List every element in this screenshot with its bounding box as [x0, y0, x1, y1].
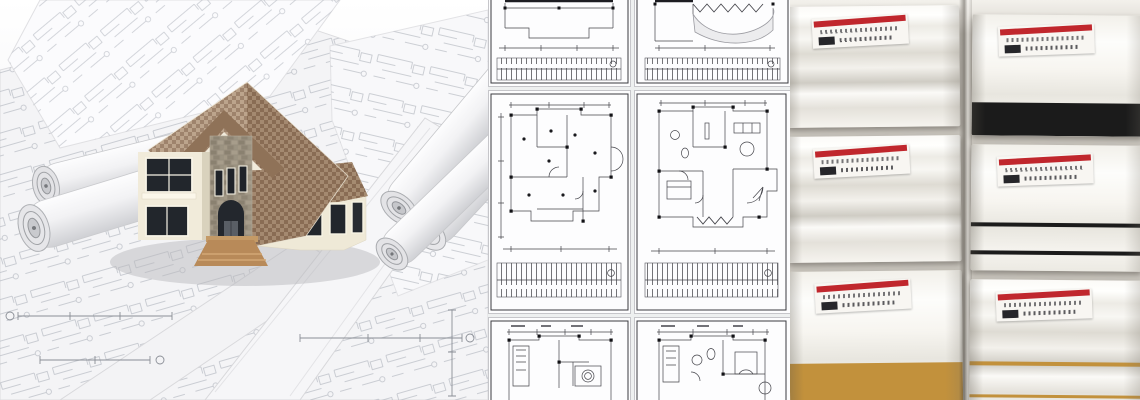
moulding-column-left — [790, 0, 963, 400]
label-logo-mark — [821, 302, 837, 311]
moulding-sample-left-3 — [790, 270, 963, 400]
label-blurred-text — [1004, 301, 1082, 308]
label-blurred-text — [1024, 175, 1076, 181]
sample-label-sticker — [997, 153, 1094, 186]
label-logo-mark — [819, 37, 835, 46]
label-red-stripe — [999, 154, 1091, 165]
label-blurred-text — [840, 35, 892, 42]
label-logo-mark — [1003, 175, 1019, 184]
panel-house-render — [0, 0, 488, 400]
floorplan-sheet-r1c2 — [635, 0, 790, 86]
label-blurred-text — [820, 26, 898, 34]
label-blurred-text — [1026, 45, 1078, 51]
sample-label-sticker — [998, 23, 1095, 56]
sample-label-sticker — [811, 14, 908, 49]
floorplan-sheet-r2c2 — [635, 91, 790, 313]
gold-pinstripe-upper — [970, 361, 1140, 366]
moulding-sample-right-2 — [970, 144, 1140, 271]
moulding-column-right — [969, 0, 1140, 400]
floorplan-sheet-r2c1 — [489, 91, 630, 313]
sample-label-sticker — [996, 288, 1093, 321]
label-red-stripe — [1000, 24, 1092, 35]
label-red-stripe — [998, 289, 1090, 300]
gold-pinstripe-lower — [969, 394, 1140, 398]
moulding-sample-left-2 — [790, 135, 962, 263]
moulding-sample-right-1 — [972, 14, 1140, 136]
black-pinstripe-lower — [971, 250, 1140, 255]
wide-gold-band — [790, 362, 963, 400]
label-logo-mark — [820, 167, 836, 176]
label-blurred-text — [1023, 310, 1075, 316]
house-render-illustration — [0, 0, 488, 400]
panel-moulding-samples — [790, 0, 1140, 400]
label-logo-mark — [1002, 310, 1018, 319]
floorplan-sheet-r3c2 — [635, 318, 790, 400]
label-blurred-text — [842, 300, 894, 307]
label-blurred-text — [823, 291, 901, 299]
tower-windows — [215, 166, 247, 196]
wide-black-band — [972, 102, 1140, 136]
moulding-sample-right-3 — [969, 279, 1140, 400]
floorplan-sheet-r3c1 — [489, 318, 630, 400]
label-blurred-text — [1006, 36, 1084, 43]
sample-label-sticker — [814, 279, 911, 314]
black-pinstripe-upper — [971, 222, 1140, 227]
banner-composite — [0, 0, 1140, 400]
label-logo-mark — [1005, 45, 1021, 54]
sample-label-sticker — [813, 144, 910, 179]
panel-floorplan-grid — [488, 0, 790, 400]
label-blurred-text — [841, 165, 893, 172]
floorplan-sheet-r1c1 — [489, 0, 630, 86]
label-blurred-text — [821, 156, 899, 164]
label-blurred-text — [1005, 166, 1083, 173]
moulding-sample-left-1 — [790, 5, 960, 128]
